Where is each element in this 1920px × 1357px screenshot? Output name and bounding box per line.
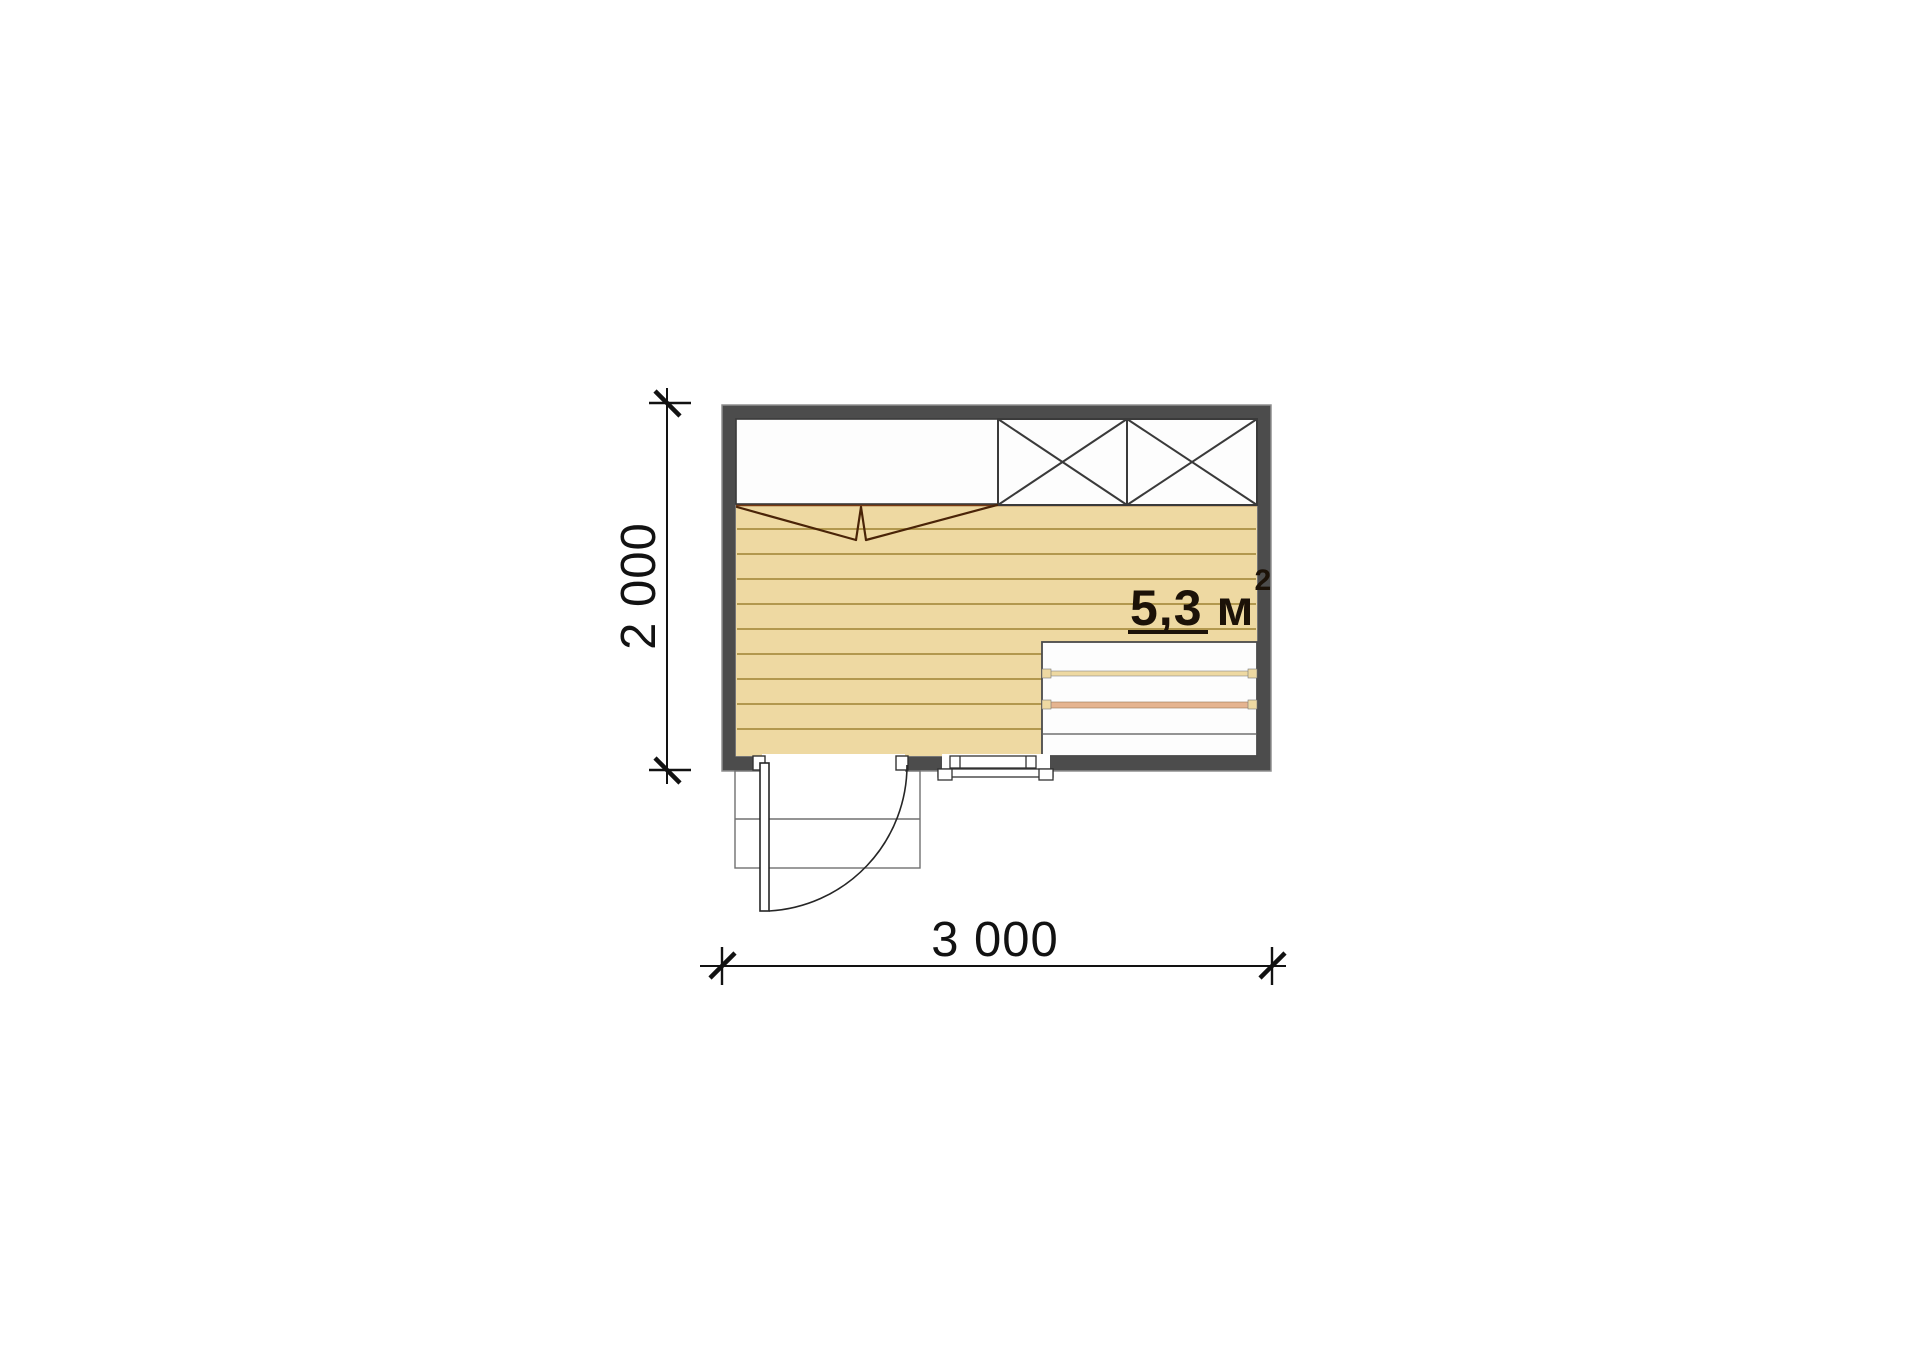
- floor-plan-page: 2 000 3 000 5,3м2: [0, 0, 1920, 1357]
- bench-body: [1042, 642, 1257, 756]
- area-label: 5,3м2: [1130, 583, 1272, 633]
- window: [938, 754, 1053, 780]
- door-opening: [762, 754, 905, 772]
- window-sill: [938, 769, 1053, 777]
- bench-gap-notch: [1042, 700, 1051, 709]
- area-exponent: 2: [1255, 564, 1273, 597]
- bench-slat-gap: [1043, 702, 1256, 708]
- bench-gap-notch: [1248, 700, 1257, 709]
- top-shelf: [736, 419, 998, 504]
- door-leaf: [760, 763, 769, 911]
- floor-plan-drawing: [0, 0, 1920, 1357]
- area-unit: м: [1217, 580, 1255, 636]
- area-underline: [1128, 630, 1208, 634]
- area-value: 5,3: [1130, 580, 1203, 636]
- width-dimension-label: 3 000: [895, 916, 1095, 965]
- window-frame: [950, 756, 1036, 768]
- crossed-box-1: [998, 419, 1127, 505]
- window-sill-tab: [1039, 769, 1053, 780]
- bench-slat-gap: [1043, 671, 1256, 676]
- bottom-bench: [1042, 642, 1257, 756]
- bench-gap-notch: [1248, 669, 1257, 678]
- bench-gap-notch: [1042, 669, 1051, 678]
- crossed-box-2: [1127, 419, 1257, 505]
- height-dimension-label: 2 000: [615, 486, 665, 686]
- window-sill-tab: [938, 769, 952, 780]
